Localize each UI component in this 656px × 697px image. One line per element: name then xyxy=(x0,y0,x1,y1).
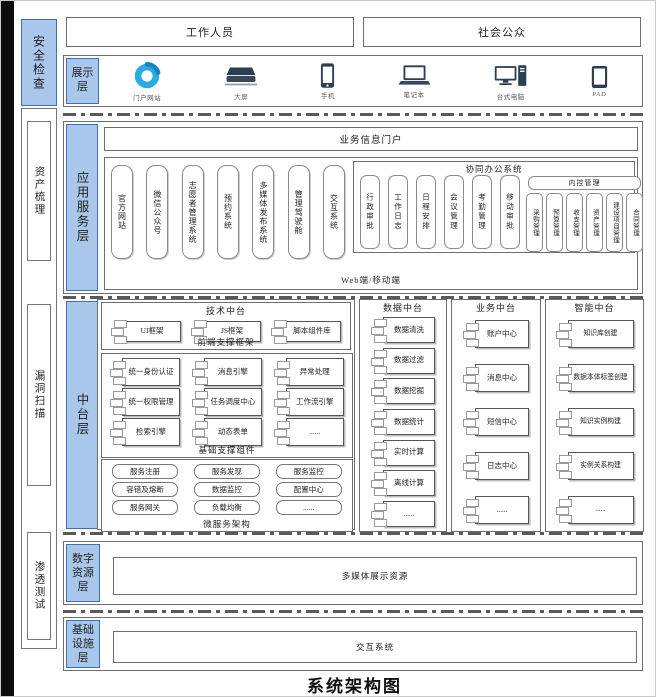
platform-item-label: 账户中心 xyxy=(475,320,529,348)
device-label: PAD xyxy=(592,91,606,98)
component-bricks-icon xyxy=(192,420,206,444)
platform-item-label: 实时计算 xyxy=(383,440,435,466)
device-label: 门户网站 xyxy=(133,92,161,102)
platform-item: 账户中心 xyxy=(463,320,529,348)
left-black-border xyxy=(1,1,14,697)
dashed-separator xyxy=(63,532,646,535)
app-system-label: 官方网站 xyxy=(117,194,128,230)
internal-control-pill: 资产管理 xyxy=(586,193,603,252)
microservice-label: 负载均衡 xyxy=(194,500,260,515)
device-pad: PAD xyxy=(591,64,608,98)
platform-item-label: 数据统计 xyxy=(383,409,435,435)
oa-items-row: 行政审批 工作日志 日程安排 会议管理 考勤管理 xyxy=(358,175,520,252)
intelligence-platform-title: 智能中台 xyxy=(546,300,643,314)
data-platform-column: 数据中台 数据清洗 数据过滤 数据挖掘 xyxy=(359,299,447,532)
app-system-pill: 预约系统 xyxy=(217,165,239,259)
base-component-cell: 任务调度中心 xyxy=(186,388,268,416)
oa-item-label: 移动审批 xyxy=(505,193,516,231)
platform-item: 数据过滤 xyxy=(371,348,435,374)
platform-item-label: 知识库创建 xyxy=(568,320,634,348)
infrastructure-layer-label: 基础设施层 xyxy=(66,620,100,668)
infrastructure-layer-text: 基础设施层 xyxy=(67,623,99,666)
microservice-label: 服务监控 xyxy=(276,464,342,479)
microservice-cell: 容错及熔断 xyxy=(104,482,186,497)
platform-item-label: ...... xyxy=(475,496,529,524)
microservice-label: 容错及熔断 xyxy=(112,482,178,497)
internal-control-label: 合同管理 xyxy=(630,209,640,237)
platform-item: 数据统计 xyxy=(371,409,435,435)
component-bricks-icon xyxy=(371,471,385,495)
oa-item-pill: 日程安排 xyxy=(416,175,436,249)
microservice-caption: 微服务架构 xyxy=(102,518,352,530)
app-system-label: 管理驾驶舱 xyxy=(293,190,304,235)
internal-control-pill: 建设项目管理 xyxy=(606,193,623,252)
display-layer-label: 展示层 xyxy=(66,58,99,104)
rail-item-label: 渗透测试 xyxy=(32,561,47,611)
platform-item: ...... xyxy=(463,496,529,524)
platform-item: 离线计算 xyxy=(371,470,435,496)
base-component-label: 动态表单 xyxy=(204,418,262,446)
component-bricks-icon xyxy=(274,360,288,384)
rail-item-penetration-test: 渗透测试 xyxy=(27,532,51,640)
component-bricks-icon xyxy=(110,420,124,444)
middle-layer-label: 中台层 xyxy=(66,301,98,529)
microservice-label: 配置中心 xyxy=(276,482,342,497)
device-portal: 门户网站 xyxy=(132,61,162,102)
desktop-icon xyxy=(493,62,529,90)
internal-control-items: 采购管理 预算管理 收支管理 资产管理 xyxy=(526,193,643,252)
microservice-label: 服务网关 xyxy=(112,500,178,515)
rail-item-label: 资产梳理 xyxy=(32,166,47,216)
collaborative-office-box: 协同办公系统 行政审批 工作日志 日程安排 xyxy=(353,161,635,253)
oa-item-label: 行政审批 xyxy=(365,193,376,231)
component-bricks-icon xyxy=(371,379,385,403)
app-systems-row: 官方网站 微信公众号 志愿者管理系统 预约系统 多媒体发布系统 管理驾驶舱 xyxy=(111,165,345,257)
dashed-separator xyxy=(63,113,646,116)
platform-item: ...... xyxy=(556,496,634,524)
actor-public-label: 社会公众 xyxy=(478,24,526,40)
laptop-icon xyxy=(398,63,431,88)
microservice-box: 服务注册 服务发现 服务监控 容错及熔断 数据监控 xyxy=(101,459,353,532)
component-bricks-icon xyxy=(192,390,206,414)
base-component-label: 统一身份认证 xyxy=(122,358,180,386)
internal-control-header: 内控管理 xyxy=(528,176,641,190)
platform-item: 数据清洗 xyxy=(371,317,435,343)
base-component-label: 任务调度中心 xyxy=(204,388,262,416)
device-laptop: 笔记本 xyxy=(398,63,431,99)
intelligence-platform-column: 智能中台 知识库创建 数据本体标签创建 知识实例构建 xyxy=(545,299,644,532)
business-platform-column: 业务中台 账户中心 消息中心 短信中心 xyxy=(451,299,541,532)
app-system-label: 多媒体发布系统 xyxy=(258,181,269,244)
device-label: 大屏 xyxy=(234,91,248,101)
business-portal-bar: 业务信息门户 xyxy=(104,127,638,151)
intelligence-platform-items: 知识库创建 数据本体标签创建 知识实例构建 实例关系构建 xyxy=(546,314,643,524)
base-component-cell: 统一身份认证 xyxy=(104,358,186,386)
microservice-label: 服务注册 xyxy=(112,464,178,479)
oa-item-label: 考勤管理 xyxy=(477,193,488,231)
microservice-cell: 服务发现 xyxy=(186,464,268,479)
business-portal-label: 业务信息门户 xyxy=(339,132,402,146)
device-big-screen: 大屏 xyxy=(224,62,258,101)
microservice-cell: 服务监控 xyxy=(268,464,350,479)
component-bricks-icon xyxy=(274,390,288,414)
app-system-pill: 官方网站 xyxy=(111,165,133,259)
platform-item-label: 消息中心 xyxy=(475,364,529,392)
tech-platform-box: 技术中台 UI框架 JS框架 脚本组件库 前端支撑框架 xyxy=(101,302,351,350)
base-component-label: 检索引擎 xyxy=(122,418,180,446)
platform-item-label: 离线计算 xyxy=(383,470,435,496)
app-system-pill: 管理驾驶舱 xyxy=(288,165,310,259)
application-layer-label: 应用服务层 xyxy=(66,124,98,291)
base-component-label: 消息引擎 xyxy=(204,358,262,386)
oa-item-pill: 行政审批 xyxy=(360,175,380,249)
device-label: 笔记本 xyxy=(404,89,425,99)
component-bricks-icon xyxy=(463,410,477,434)
microservice-cell: ...... xyxy=(268,500,350,515)
platform-item-label: 日志中心 xyxy=(475,452,529,480)
component-bricks-icon xyxy=(556,410,570,434)
base-component-cell: ...... xyxy=(268,418,350,446)
platform-item-label: 短信中心 xyxy=(475,408,529,436)
base-components-box: 统一身份认证 消息引擎 异常处理 统一权限管理 xyxy=(101,353,353,458)
app-system-label: 预约系统 xyxy=(222,194,233,230)
rail-item-asset-sorting: 资产梳理 xyxy=(27,121,51,261)
dashed-separator xyxy=(63,610,646,613)
base-components-caption: 基础支撑组件 xyxy=(102,444,352,456)
oa-item-label: 会议管理 xyxy=(449,193,460,231)
app-system-pill: 微信公众号 xyxy=(146,165,168,259)
interaction-system-label: 交互系统 xyxy=(356,641,394,653)
app-system-pill: 交互系统 xyxy=(323,165,345,259)
base-components-grid: 统一身份认证 消息引擎 异常处理 统一权限管理 xyxy=(102,354,352,448)
microservice-cell: 配置中心 xyxy=(268,482,350,497)
resource-layer-label: 数字资源层 xyxy=(66,544,100,602)
base-component-label: 工作流引擎 xyxy=(286,388,344,416)
business-platform-title: 业务中台 xyxy=(452,300,540,314)
component-bricks-icon xyxy=(463,366,477,390)
security-check-label: 安全检查 xyxy=(21,19,57,106)
platform-item: 实时计算 xyxy=(371,440,435,466)
component-bricks-icon xyxy=(463,498,477,522)
component-bricks-icon xyxy=(371,318,385,342)
component-bricks-icon xyxy=(371,502,385,526)
internal-control-label: 建设项目管理 xyxy=(610,202,620,244)
platform-item-label: 数据清洗 xyxy=(383,317,435,343)
multimedia-resource-box: 多媒体展示资源 xyxy=(113,557,637,595)
oa-item-label: 工作日志 xyxy=(393,193,404,231)
rail-item-label: 漏洞扫描 xyxy=(32,370,47,420)
component-bricks-icon xyxy=(371,410,385,434)
component-bricks-icon xyxy=(463,454,477,478)
rail-item-vulnerability-scan: 漏洞扫描 xyxy=(27,304,51,486)
platform-item-label: ...... xyxy=(568,496,634,524)
device-row: 门户网站 大屏 手机 笔记本 xyxy=(101,56,639,106)
actor-public-box: 社会公众 xyxy=(363,17,641,47)
platform-item: ...... xyxy=(371,501,435,527)
system-architecture-diagram: 安全检查 资产梳理 漏洞扫描 渗透测试 工作人员 社会公众 展示层 门户网站 xyxy=(0,0,656,697)
component-bricks-icon xyxy=(556,454,570,478)
device-phone: 手机 xyxy=(320,62,335,100)
component-bricks-icon xyxy=(371,441,385,465)
device-label: 手机 xyxy=(321,90,335,100)
display-layer-text: 展示层 xyxy=(67,67,98,95)
device-desktop: 台式电脑 xyxy=(493,62,529,101)
internal-control-label: 收支管理 xyxy=(570,209,580,237)
interaction-system-box: 交互系统 xyxy=(113,631,637,663)
actor-staff-label: 工作人员 xyxy=(186,24,234,40)
app-system-label: 交互系统 xyxy=(328,194,339,230)
platform-item: 数据本体标签创建 xyxy=(556,364,634,392)
base-component-cell: 工作流引擎 xyxy=(268,388,350,416)
base-component-cell: 检索引擎 xyxy=(104,418,186,446)
oa-item-pill: 会议管理 xyxy=(444,175,464,249)
app-system-pill: 志愿者管理系统 xyxy=(182,165,204,259)
oa-item-label: 日程安排 xyxy=(421,193,432,231)
internal-control-pill: 预算管理 xyxy=(546,193,563,252)
application-layer-text: 应用服务层 xyxy=(73,171,92,244)
app-system-label: 微信公众号 xyxy=(152,190,163,235)
big-screen-icon xyxy=(224,62,258,90)
platform-item-label: 实例关系构建 xyxy=(568,452,634,480)
diagram-title: 系统架构图 xyxy=(63,672,646,697)
platform-item-label: 知识实例构建 xyxy=(568,408,634,436)
platform-item: 知识实例构建 xyxy=(556,408,634,436)
platform-item-label: 数据挖掘 xyxy=(383,378,435,404)
base-component-label: 统一权限管理 xyxy=(122,388,180,416)
oa-item-pill: 工作日志 xyxy=(388,175,408,249)
base-component-cell: 统一权限管理 xyxy=(104,388,186,416)
tech-platform-title: 技术中台 xyxy=(102,303,350,317)
oa-item-pill: 移动审批 xyxy=(500,175,520,249)
platform-item: 数据挖掘 xyxy=(371,378,435,404)
microservice-label: ...... xyxy=(276,500,342,515)
internal-control-label: 资产管理 xyxy=(590,209,600,237)
platform-item: 短信中心 xyxy=(463,408,529,436)
platform-item: 实例关系构建 xyxy=(556,452,634,480)
platform-item: 日志中心 xyxy=(463,452,529,480)
app-system-pill: 多媒体发布系统 xyxy=(252,165,274,259)
resource-layer-text: 数字资源层 xyxy=(67,552,99,595)
internal-control-pill: 收支管理 xyxy=(566,193,583,252)
frontend-framework-caption: 前端支撑框架 xyxy=(102,336,350,348)
microservice-grid: 服务注册 服务发现 服务监控 容错及熔断 数据监控 xyxy=(102,460,352,518)
base-component-label: 异常处理 xyxy=(286,358,344,386)
component-bricks-icon xyxy=(463,322,477,346)
component-bricks-icon xyxy=(192,360,206,384)
component-bricks-icon xyxy=(274,420,288,444)
web-mobile-footer: Web端/移动端 xyxy=(104,274,638,286)
microservice-cell: 服务网关 xyxy=(104,500,186,515)
phone-icon xyxy=(320,62,335,89)
internal-control-group: 内控管理 采购管理 预算管理 收支管理 xyxy=(526,175,643,252)
business-platform-items: 账户中心 消息中心 短信中心 日志中心 xyxy=(452,314,540,524)
component-bricks-icon xyxy=(556,322,570,346)
platform-item-label: 数据过滤 xyxy=(383,348,435,374)
microservice-label: 数据监控 xyxy=(194,482,260,497)
component-bricks-icon xyxy=(556,366,570,390)
base-component-cell: 消息引擎 xyxy=(186,358,268,386)
platform-item: 知识库创建 xyxy=(556,320,634,348)
internal-control-pill: 采购管理 xyxy=(526,193,543,252)
component-bricks-icon xyxy=(110,360,124,384)
platform-item: 消息中心 xyxy=(463,364,529,392)
component-bricks-icon xyxy=(556,498,570,522)
actor-staff-box: 工作人员 xyxy=(66,17,354,47)
base-component-cell: 动态表单 xyxy=(186,418,268,446)
multimedia-resource-label: 多媒体展示资源 xyxy=(342,570,409,582)
portal-icon xyxy=(132,61,162,91)
data-platform-title: 数据中台 xyxy=(360,300,446,314)
device-label: 台式电脑 xyxy=(497,91,525,101)
microservice-cell: 数据监控 xyxy=(186,482,268,497)
oa-item-pill: 考勤管理 xyxy=(472,175,492,249)
base-component-cell: 异常处理 xyxy=(268,358,350,386)
collaborative-office-body: 行政审批 工作日志 日程安排 会议管理 考勤管理 xyxy=(354,175,634,252)
platform-item-label: ...... xyxy=(383,501,435,527)
component-bricks-icon xyxy=(110,390,124,414)
data-platform-items: 数据清洗 数据过滤 数据挖掘 数据统计 xyxy=(360,314,446,527)
security-check-text: 安全检查 xyxy=(31,35,48,91)
internal-control-label: 采购管理 xyxy=(530,209,540,237)
microservice-cell: 服务注册 xyxy=(104,464,186,479)
component-bricks-icon xyxy=(371,349,385,373)
collaborative-office-title: 协同办公系统 xyxy=(354,162,634,175)
internal-control-pill: 合同管理 xyxy=(626,193,643,252)
base-component-label: ...... xyxy=(286,418,344,446)
app-system-label: 志愿者管理系统 xyxy=(187,181,198,244)
pad-icon xyxy=(591,64,608,90)
microservice-cell: 负载均衡 xyxy=(186,500,268,515)
internal-control-label: 预算管理 xyxy=(550,209,560,237)
middle-layer-text: 中台层 xyxy=(73,393,92,437)
microservice-label: 服务发现 xyxy=(194,464,260,479)
platform-item-label: 数据本体标签创建 xyxy=(568,364,634,392)
